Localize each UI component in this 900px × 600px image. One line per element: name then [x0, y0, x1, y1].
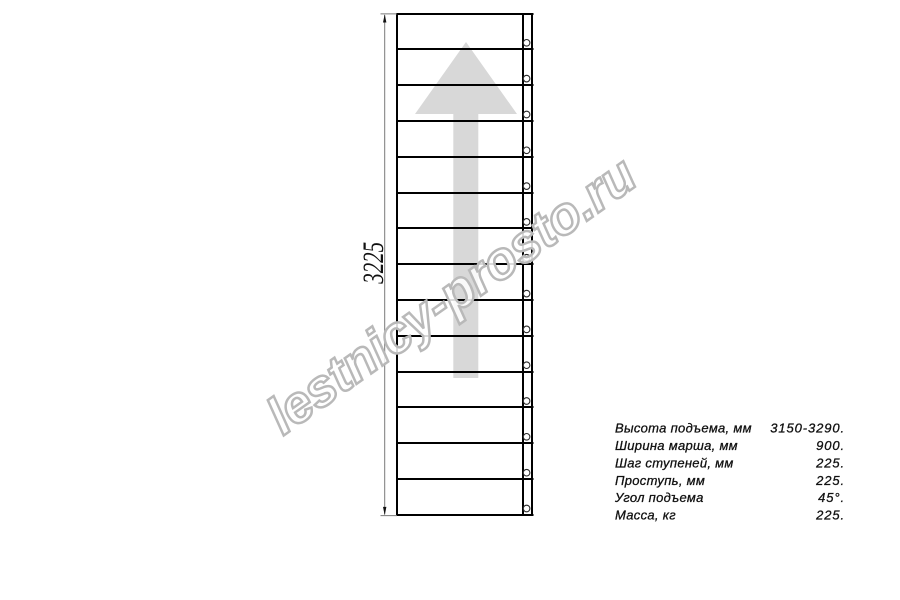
- svg-text:225.: 225.: [815, 508, 845, 523]
- svg-text:lestnicy-prosto.ru: lestnicy-prosto.ru: [256, 145, 647, 446]
- svg-text:900.: 900.: [816, 438, 845, 453]
- svg-text:Шаг ступеней, мм: Шаг ступеней, мм: [615, 455, 734, 470]
- svg-text:3225: 3225: [357, 242, 390, 285]
- svg-text:Угол подъема: Угол подъема: [614, 490, 704, 505]
- svg-text:Ширина марша, мм: Ширина марша, мм: [615, 438, 738, 453]
- svg-text:Масса, кг: Масса, кг: [615, 508, 676, 523]
- svg-text:Высота подъема, мм: Высота подъема, мм: [615, 421, 752, 436]
- svg-text:Проступь, мм: Проступь, мм: [615, 473, 705, 488]
- svg-text:225.: 225.: [815, 455, 845, 470]
- svg-text:3150-3290.: 3150-3290.: [770, 421, 845, 436]
- svg-text:45°.: 45°.: [818, 490, 845, 505]
- svg-text:225.: 225.: [815, 473, 845, 488]
